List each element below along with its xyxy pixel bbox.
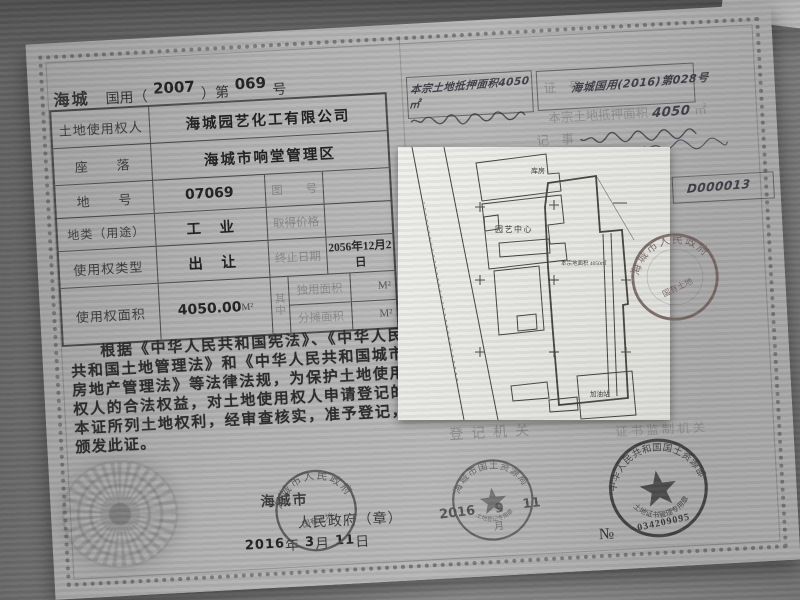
handwritten-certno: 海城国用(2016)第028号	[571, 69, 710, 96]
expiry-label: 终止日期	[268, 238, 328, 277]
building-inner	[499, 239, 550, 257]
sole-label: 独用面积	[288, 273, 351, 304]
bureau-seal-dates: 2016 9 11 月	[443, 450, 543, 550]
bureau-date-month: 9	[494, 501, 505, 517]
expiry-value: 2056年12月2日	[326, 234, 394, 274]
bureau-date-year: 2016	[438, 503, 476, 522]
price-label: 取得价格	[267, 205, 327, 240]
area-label: 使用权面积	[61, 284, 162, 345]
serial-number: 069	[228, 73, 272, 93]
photo-background: 海城国用（2007）第069号 土地使用权人 海城园艺化工有限公司 座 落 海城…	[0, 0, 800, 600]
road-line	[444, 147, 498, 420]
mortgage-label: 本宗土地抵押面积	[548, 106, 649, 125]
price-value	[325, 201, 393, 237]
gov-seal-inner-text: 国有土地	[301, 511, 335, 530]
map-label-warehouse: 库房	[531, 166, 545, 175]
shared-label: 分摊面积	[290, 302, 353, 333]
mapno-label: 图 号	[265, 172, 325, 207]
land-bureau-seal: 海城市国土资源局 土地登记专用章 2016 9 11 月	[443, 450, 543, 550]
location-label: 座 落	[53, 144, 153, 185]
area-value: 4050.00	[177, 299, 242, 318]
parcel-label: 地 号	[55, 181, 155, 218]
landuse-label: 地类（用途）	[57, 214, 157, 251]
serial-year: 2007	[147, 77, 202, 98]
parcel-value: 07069	[153, 175, 267, 213]
mapno-value	[323, 168, 391, 204]
landuse-value: 工 业	[155, 208, 269, 246]
righttype-label: 使用权类型	[59, 247, 159, 288]
shared-unit: M²	[351, 299, 397, 329]
building-inner	[517, 314, 537, 331]
map-label-area: 本宗地面积 4050㎡	[561, 259, 607, 267]
vegetation-line	[424, 202, 458, 382]
building-outline	[511, 382, 549, 401]
star-icon	[638, 468, 680, 508]
strip-line	[603, 234, 609, 397]
sole-unit: M²	[350, 271, 396, 301]
parcel-boundary	[545, 176, 628, 405]
bureau-date-day: 11	[522, 495, 542, 512]
doc-number-box: D000013	[672, 171, 775, 203]
government-seal: 海城市人民政府 国有土地	[263, 458, 369, 564]
map-seal-inner-text: 国有土地	[661, 276, 695, 299]
road-line	[412, 147, 464, 420]
map-label-station: 加油站	[590, 389, 610, 398]
mortgage-unit: ㎡	[694, 103, 707, 118]
area-value-cell: 4050.00M²	[159, 278, 274, 340]
bureau-month-label: 月	[493, 517, 505, 533]
map-label-center: 园艺中心	[495, 224, 533, 234]
righttype-value: 出 让	[157, 241, 271, 283]
area-subgrid: 独用面积 M² 分摊面积 M²	[288, 271, 397, 333]
handwritten-mortgage-value: 4050	[652, 103, 691, 121]
land-data-table: 土地使用权人 海城园艺化工有限公司 座 落 海城市响堂管理区 地 号 07069…	[49, 92, 399, 347]
memo-label: 记 事	[536, 132, 574, 148]
building-outline-warehouse	[476, 154, 561, 201]
mortgage-note-box: 本宗土地抵押面积4050㎡	[406, 70, 534, 119]
decree-paragraph: 根据《中华人民共和国宪法》、《中华人民共和国土地管理法》和《中华人民共和国城市房…	[70, 327, 410, 459]
area-unit: M²	[241, 301, 253, 313]
serial-region: 海城	[53, 91, 90, 110]
serial-suffix: 号	[272, 83, 287, 99]
owner-label: 土地使用权人	[51, 107, 151, 148]
ministry-seal: 中华人民共和国国土资源部 土地证书管理专用章 034209095	[599, 428, 718, 547]
strip-line	[611, 233, 617, 396]
serial-mid: ）第	[201, 86, 230, 102]
